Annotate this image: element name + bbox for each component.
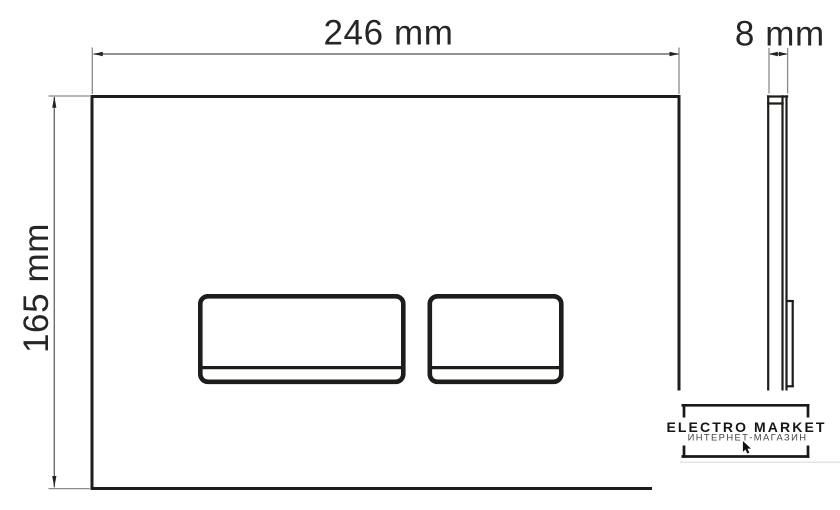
svg-text:ИНТЕРНЕТ-МАГАЗИН: ИНТЕРНЕТ-МАГАЗИН (688, 432, 808, 443)
svg-text:165 mm: 165 mm (17, 223, 56, 353)
svg-text:246 mm: 246 mm (323, 14, 453, 53)
svg-text:8 mm: 8 mm (735, 14, 825, 53)
